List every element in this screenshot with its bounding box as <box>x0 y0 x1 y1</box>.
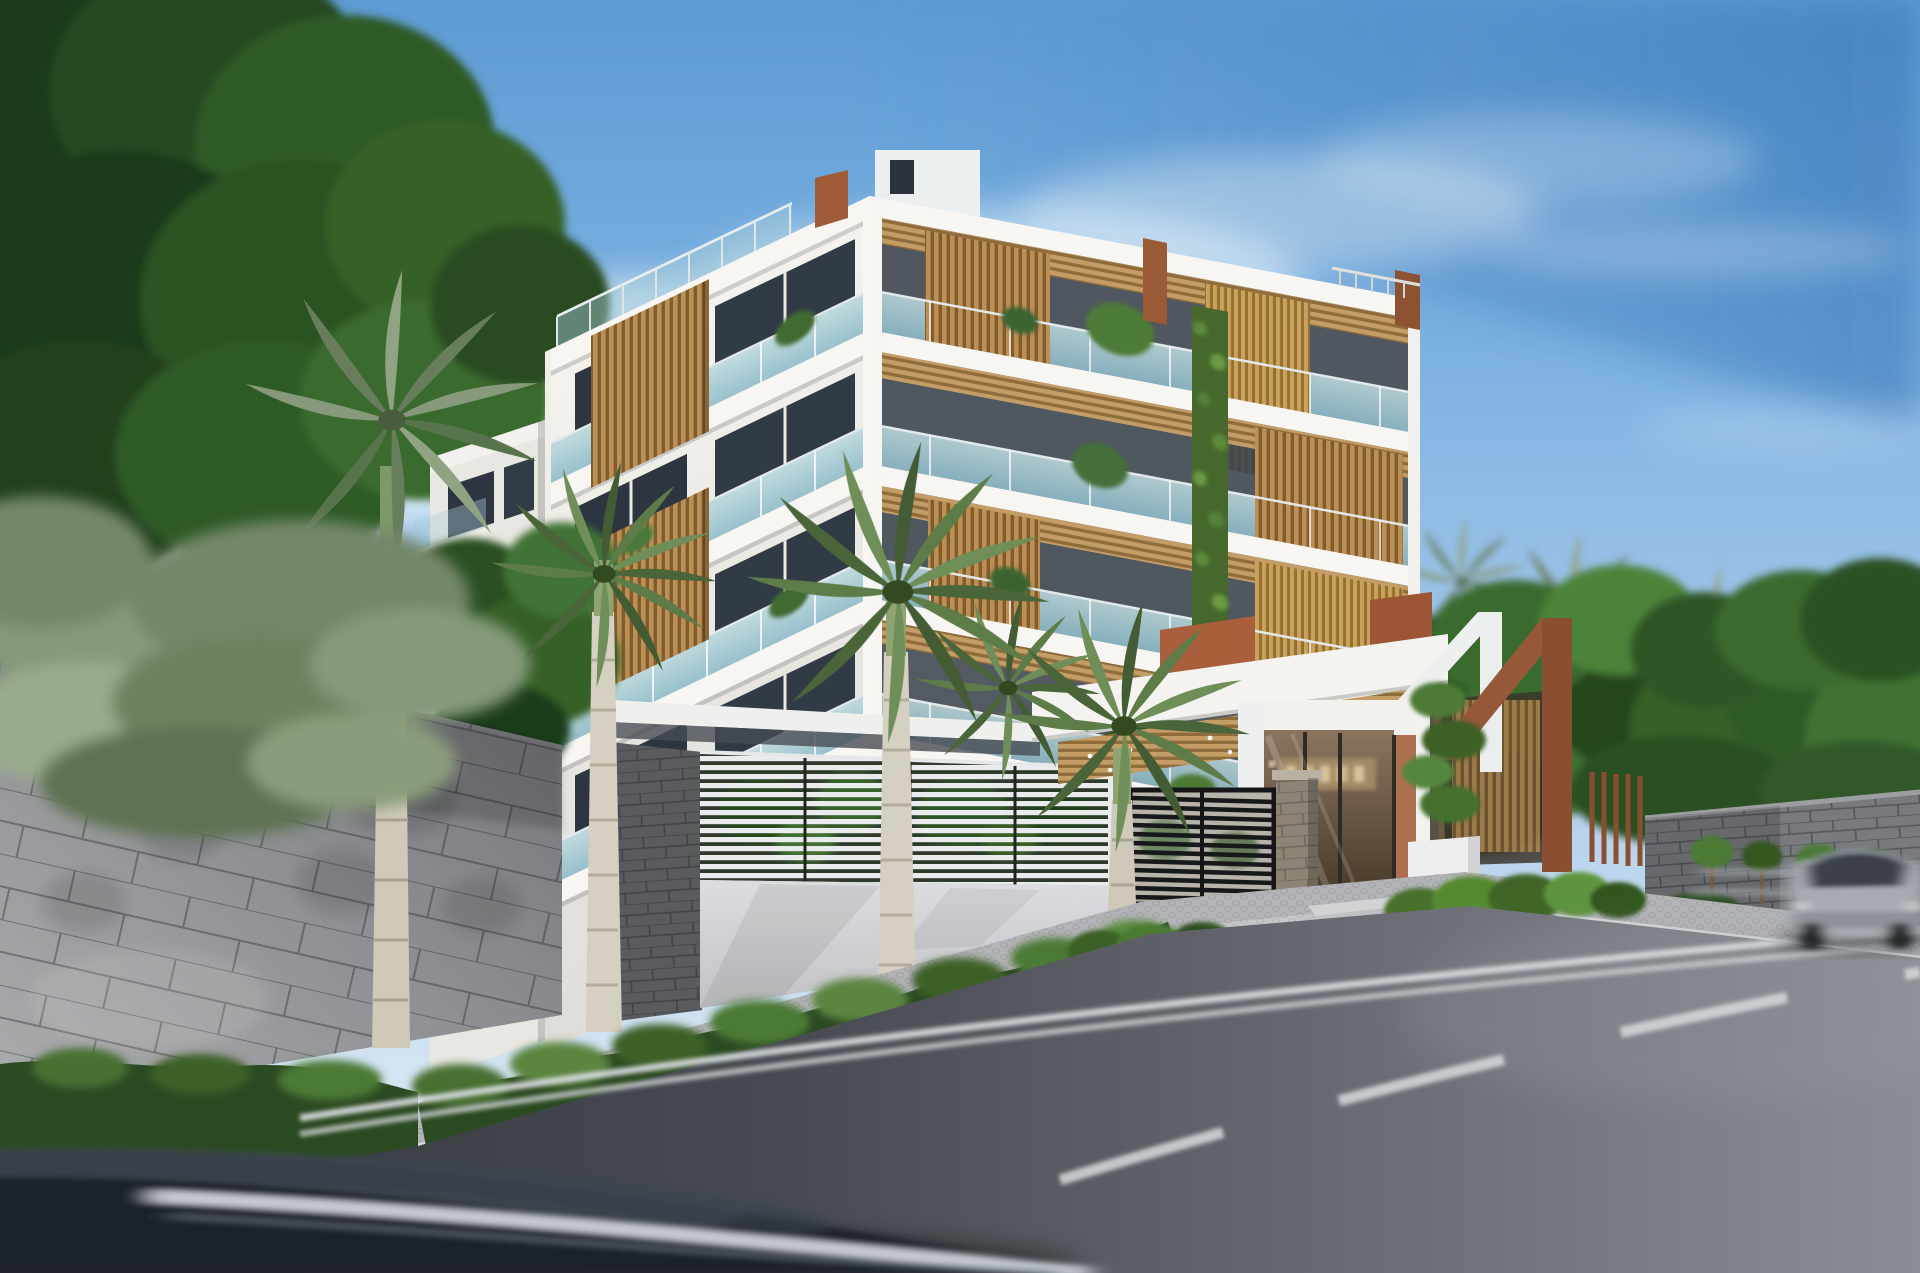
driveway-gate <box>1130 790 1274 904</box>
stone-pillar <box>1272 770 1322 906</box>
green-wall <box>1192 305 1228 672</box>
rendering-canvas: Daytime architectural rendering of a mod… <box>0 0 1920 1273</box>
scene-svg <box>0 0 1920 1273</box>
